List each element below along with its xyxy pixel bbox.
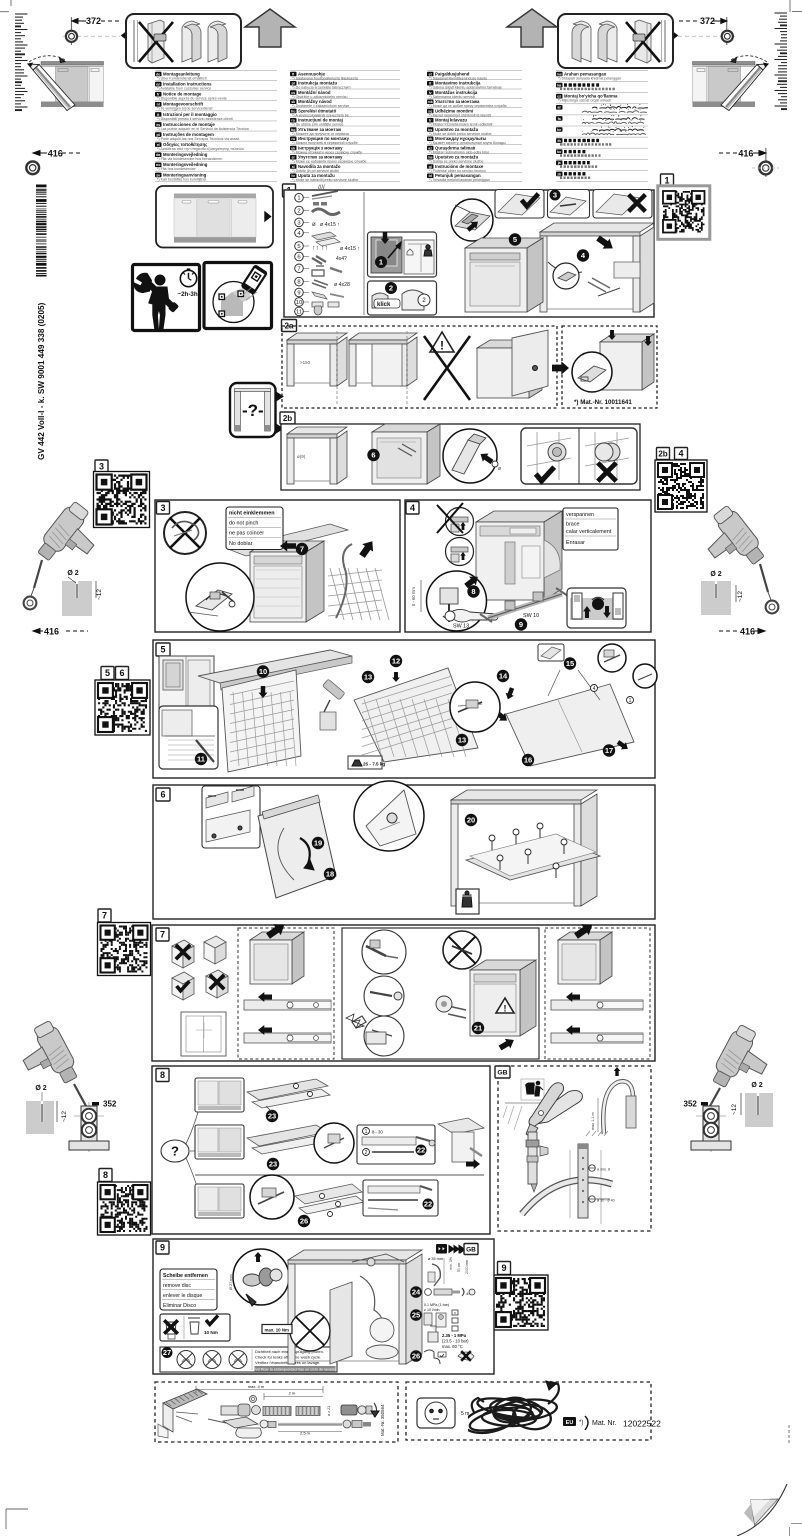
svg-text:*) Fås hos kundeservice: *) Fås hos kundeservice: [157, 167, 196, 171]
svg-text:max. 4 m: max. 4 m: [248, 1384, 265, 1389]
svg-text:*) Disponibili presso il servi: *) Disponibili presso il servizio assist…: [157, 117, 233, 121]
svg-text:8 - 30: 8 - 30: [372, 1130, 383, 1135]
svg-text:Scheibe entfernen: Scheibe entfernen: [163, 1273, 208, 1279]
svg-text:7: 7: [102, 911, 107, 921]
svg-text:8: 8: [471, 587, 475, 596]
svg-text:zh: zh: [557, 172, 561, 176]
svg-text:416: 416: [740, 627, 755, 637]
svg-text:10: 10: [259, 667, 267, 676]
svg-text:*) Mat.-Nr. 10011641: *) Mat.-Nr. 10011641: [574, 399, 632, 406]
svg-text:~12: ~12: [737, 591, 744, 602]
svg-text:10: 10: [296, 300, 302, 306]
svg-text:4: 4: [678, 449, 683, 459]
svg-text:Ø 2: Ø 2: [751, 1082, 762, 1089]
svg-text:1: 1: [365, 1129, 368, 1135]
svg-text:-?-: -?-: [242, 401, 264, 420]
svg-text:*) Disponible auprès du servic: *) Disponible auprès du service après-ve…: [157, 97, 227, 101]
svg-text:Enrasar: Enrasar: [566, 540, 585, 546]
svg-text:////: ////: [318, 185, 325, 191]
svg-text:7: 7: [300, 545, 304, 554]
svg-text:SW 13: SW 13: [453, 624, 469, 630]
svg-text:27: 27: [163, 1348, 171, 1357]
svg-text:ø 4x15 ↑: ø 4x15 ↑: [340, 246, 360, 252]
svg-text:ø: ø: [312, 222, 316, 228]
svg-text:GV 442 Voll-I - k. SW 9001 44: GV 442 Voll-I - k. SW 9001 449 338 (0205…: [37, 302, 46, 460]
svg-text:brace: brace: [566, 522, 580, 528]
svg-text:*) Über Kundendienst erhältlic: *) Über Kundendienst erhältlich: [157, 76, 207, 80]
svg-text:13: 13: [458, 736, 466, 745]
svg-text:6: 6: [297, 255, 300, 261]
svg-text:50 cm: 50 cm: [457, 1263, 461, 1272]
svg-text:5: 5: [513, 235, 517, 244]
svg-text:5: 5: [105, 668, 110, 678]
svg-text:ø 4x28: ø 4x28: [334, 282, 350, 288]
svg-text:12022522: 12022522: [623, 1419, 661, 1429]
svg-text:ar: ar: [557, 106, 561, 110]
svg-text:18: 18: [326, 870, 334, 879]
svg-text:6: 6: [160, 790, 165, 800]
svg-text:3: 3: [553, 191, 557, 200]
svg-text:SW 10: SW 10: [523, 613, 539, 619]
svg-text:0.1 MPa (1 bar): 0.1 MPa (1 bar): [424, 1303, 449, 1307]
svg-text:372: 372: [86, 16, 101, 26]
svg-text:!: !: [504, 1004, 507, 1014]
svg-text:2: 2: [365, 1150, 368, 1156]
svg-text:max 1,1 m: max 1,1 m: [591, 1112, 595, 1130]
svg-text:2b: 2b: [283, 414, 292, 423]
svg-text:24: 24: [412, 1288, 421, 1297]
svg-text:*): *): [579, 1420, 583, 1426]
svg-text:21: 21: [474, 1024, 482, 1033]
svg-text:ø(9): ø(9): [297, 454, 306, 459]
svg-text:↑↑ ↑↑: ↑↑ ↑↑: [312, 245, 328, 252]
svg-text:2.35 - 1 MPa: 2.35 - 1 MPa: [442, 1333, 467, 1338]
svg-text:EU: EU: [566, 1420, 574, 1426]
svg-text:9: 9: [519, 620, 523, 629]
svg-text:7: 7: [297, 266, 300, 272]
svg-text:(23.5 - 10 bar): (23.5 - 10 bar): [442, 1339, 469, 1344]
svg-text:416: 416: [738, 149, 753, 159]
svg-text:10 Nm: 10 Nm: [204, 1330, 218, 1335]
svg-text:11: 11: [197, 755, 205, 764]
svg-text:*) Available from customer ser: *) Available from customer service: [157, 86, 211, 90]
svg-text:26: 26: [412, 1352, 420, 1361]
svg-text:416: 416: [44, 627, 59, 637]
svg-text:3: 3: [99, 462, 104, 472]
svg-text:>150: >150: [300, 360, 311, 365]
svg-text:verspannen: verspannen: [566, 512, 594, 518]
svg-text:calar verticalement: calar verticalement: [566, 529, 612, 535]
svg-text:2 m: 2 m: [289, 1391, 296, 1396]
svg-text:*) Te verkrijgen bij de servic: *) Te verkrijgen bij de servicedienst: [157, 107, 212, 111]
svg-text:4: 4: [593, 686, 596, 692]
svg-text:Ø 2: Ø 2: [67, 570, 78, 577]
svg-text:17: 17: [605, 746, 613, 755]
svg-text:ø 35 mm: ø 35 mm: [428, 1257, 443, 1261]
svg-text:th: th: [557, 139, 560, 143]
svg-text:max. 10 Nm: max. 10 Nm: [265, 1328, 290, 1333]
svg-text:5: 5: [160, 645, 165, 655]
svg-text:6: 6: [119, 668, 124, 678]
svg-text:ø: ø: [498, 466, 501, 472]
svg-text:3: 3: [297, 220, 300, 226]
svg-text:klick: klick: [377, 302, 391, 308]
svg-text:remove disc: remove disc: [163, 1283, 191, 1289]
svg-text:8: 8: [160, 1070, 165, 1080]
svg-text:~12: ~12: [731, 1104, 738, 1115]
svg-text:4x4?: 4x4?: [336, 256, 347, 262]
svg-text:ne pas coincer: ne pas coincer: [229, 531, 264, 537]
svg-text:9: 9: [501, 1263, 506, 1273]
svg-text:20: 20: [467, 816, 475, 825]
svg-text:~12: ~12: [61, 1111, 68, 1122]
svg-text:25: 25: [412, 1311, 420, 1320]
svg-text:1: 1: [629, 698, 632, 704]
svg-text:Ø 2: Ø 2: [710, 571, 721, 578]
svg-text:?: ?: [171, 1144, 179, 1159]
svg-text:352: 352: [684, 1100, 698, 1109]
svg-text:~2h-3h: ~2h-3h: [178, 291, 198, 298]
svg-text:~12: ~12: [96, 589, 103, 600]
svg-text:ø 4x15 ↑: ø 4x15 ↑: [320, 222, 340, 228]
svg-text:0 - 60 mm: 0 - 60 mm: [411, 587, 416, 606]
svg-text:9: 9: [297, 291, 300, 297]
svg-text:5: 5: [297, 244, 300, 250]
svg-text:9: 9: [160, 1243, 165, 1253]
svg-text:ø ≥ 21: ø ≥ 21: [327, 1406, 331, 1416]
svg-text:*) Διατίθεται από την υπηρεσία: *) Διατίθεται από την υπηρεσία εξυπηρέτη…: [157, 147, 244, 151]
svg-text:!: !: [440, 339, 444, 353]
svg-text:nicht einklemmen: nicht einklemmen: [229, 511, 275, 517]
svg-text:2: 2: [297, 209, 300, 215]
svg-text:≥ 10 l/min: ≥ 10 l/min: [424, 1308, 440, 1312]
svg-text:Mat.-Nr. 350564: Mat.-Nr. 350564: [380, 1404, 385, 1436]
svg-text:8: 8: [297, 280, 300, 286]
svg-text:*) Kan beställas hos kundtjäns: *) Kan beställas hos kundtjänst: [157, 177, 206, 181]
svg-text:*) Mijozlarga xizmat orqali ol: *) Mijozlarga xizmat orqali olinadi: [558, 99, 611, 103]
svg-text:ø min. 8: ø min. 8: [597, 1168, 610, 1172]
svg-text:*) Las puede adquirir en el Se: *) Las puede adquirir en el Servicio de …: [157, 127, 249, 131]
svg-text:22: 22: [417, 1146, 425, 1155]
svg-text:1: 1: [664, 176, 669, 186]
svg-text:Ø 2: Ø 2: [35, 1085, 46, 1092]
svg-text:372: 372: [700, 16, 715, 26]
svg-text:23: 23: [268, 1112, 276, 1121]
svg-text:7: 7: [160, 930, 165, 940]
svg-text:4: 4: [410, 503, 415, 513]
svg-text:Eliminar Disco: Eliminar Disco: [163, 1303, 196, 1309]
svg-text:min. 3%: min. 3%: [449, 1256, 453, 1270]
svg-text:max. 60 °C: max. 60 °C: [442, 1344, 463, 1349]
svg-text:16: 16: [524, 756, 532, 765]
svg-text:x: x: [454, 1311, 456, 1315]
svg-text:he: he: [557, 128, 561, 132]
svg-text:25 - 7.5 kg: 25 - 7.5 kg: [363, 762, 385, 767]
svg-text:12: 12: [392, 657, 400, 666]
svg-text:Mat. Nr.: Mat. Nr.: [592, 1420, 617, 1427]
svg-text:Verificar la estanqueidad tras: Verificar la estanqueidad tras un ciclo …: [255, 1368, 336, 1372]
svg-text:2b: 2b: [658, 449, 667, 458]
svg-text:8: 8: [103, 1170, 108, 1180]
svg-text:15: 15: [566, 659, 574, 668]
svg-text:*) Pode adquiri-las nos Serviç: *) Pode adquiri-las nos Serviços Técnico…: [157, 137, 240, 141]
svg-text:2: 2: [389, 284, 393, 293]
svg-text:23: 23: [269, 1160, 277, 1169]
svg-text:3: 3: [160, 503, 165, 513]
svg-text:352: 352: [103, 1100, 117, 1109]
svg-text:do not pinch: do not pinch: [229, 521, 258, 527]
svg-text:GB: GB: [497, 1069, 507, 1076]
svg-text:enlever le disque: enlever le disque: [163, 1293, 202, 1299]
svg-text:No doblar: No doblar: [229, 541, 253, 547]
svg-text:19: 19: [314, 839, 322, 848]
svg-text:13: 13: [364, 673, 372, 682]
svg-text:1: 1: [379, 258, 383, 267]
svg-text:Ø 27 mm: Ø 27 mm: [229, 1274, 233, 1290]
svg-text:*) Didapati daripada khidmat p: *) Didapati daripada khidmat pelanggan: [558, 76, 621, 80]
svg-text:6: 6: [371, 451, 375, 460]
svg-text:22: 22: [424, 1200, 432, 1209]
svg-text:GB: GB: [466, 1246, 476, 1253]
svg-text:11: 11: [296, 309, 302, 315]
svg-text:*) Fås via kundeservice hos fo: *) Fås via kundeservice hos forhandleren: [157, 157, 222, 161]
svg-text:416: 416: [48, 149, 63, 159]
svg-text:2000 mm: 2000 mm: [465, 1260, 469, 1274]
svg-text:14: 14: [499, 672, 508, 681]
svg-text:26: 26: [300, 1217, 308, 1226]
svg-text:1: 1: [297, 196, 300, 202]
